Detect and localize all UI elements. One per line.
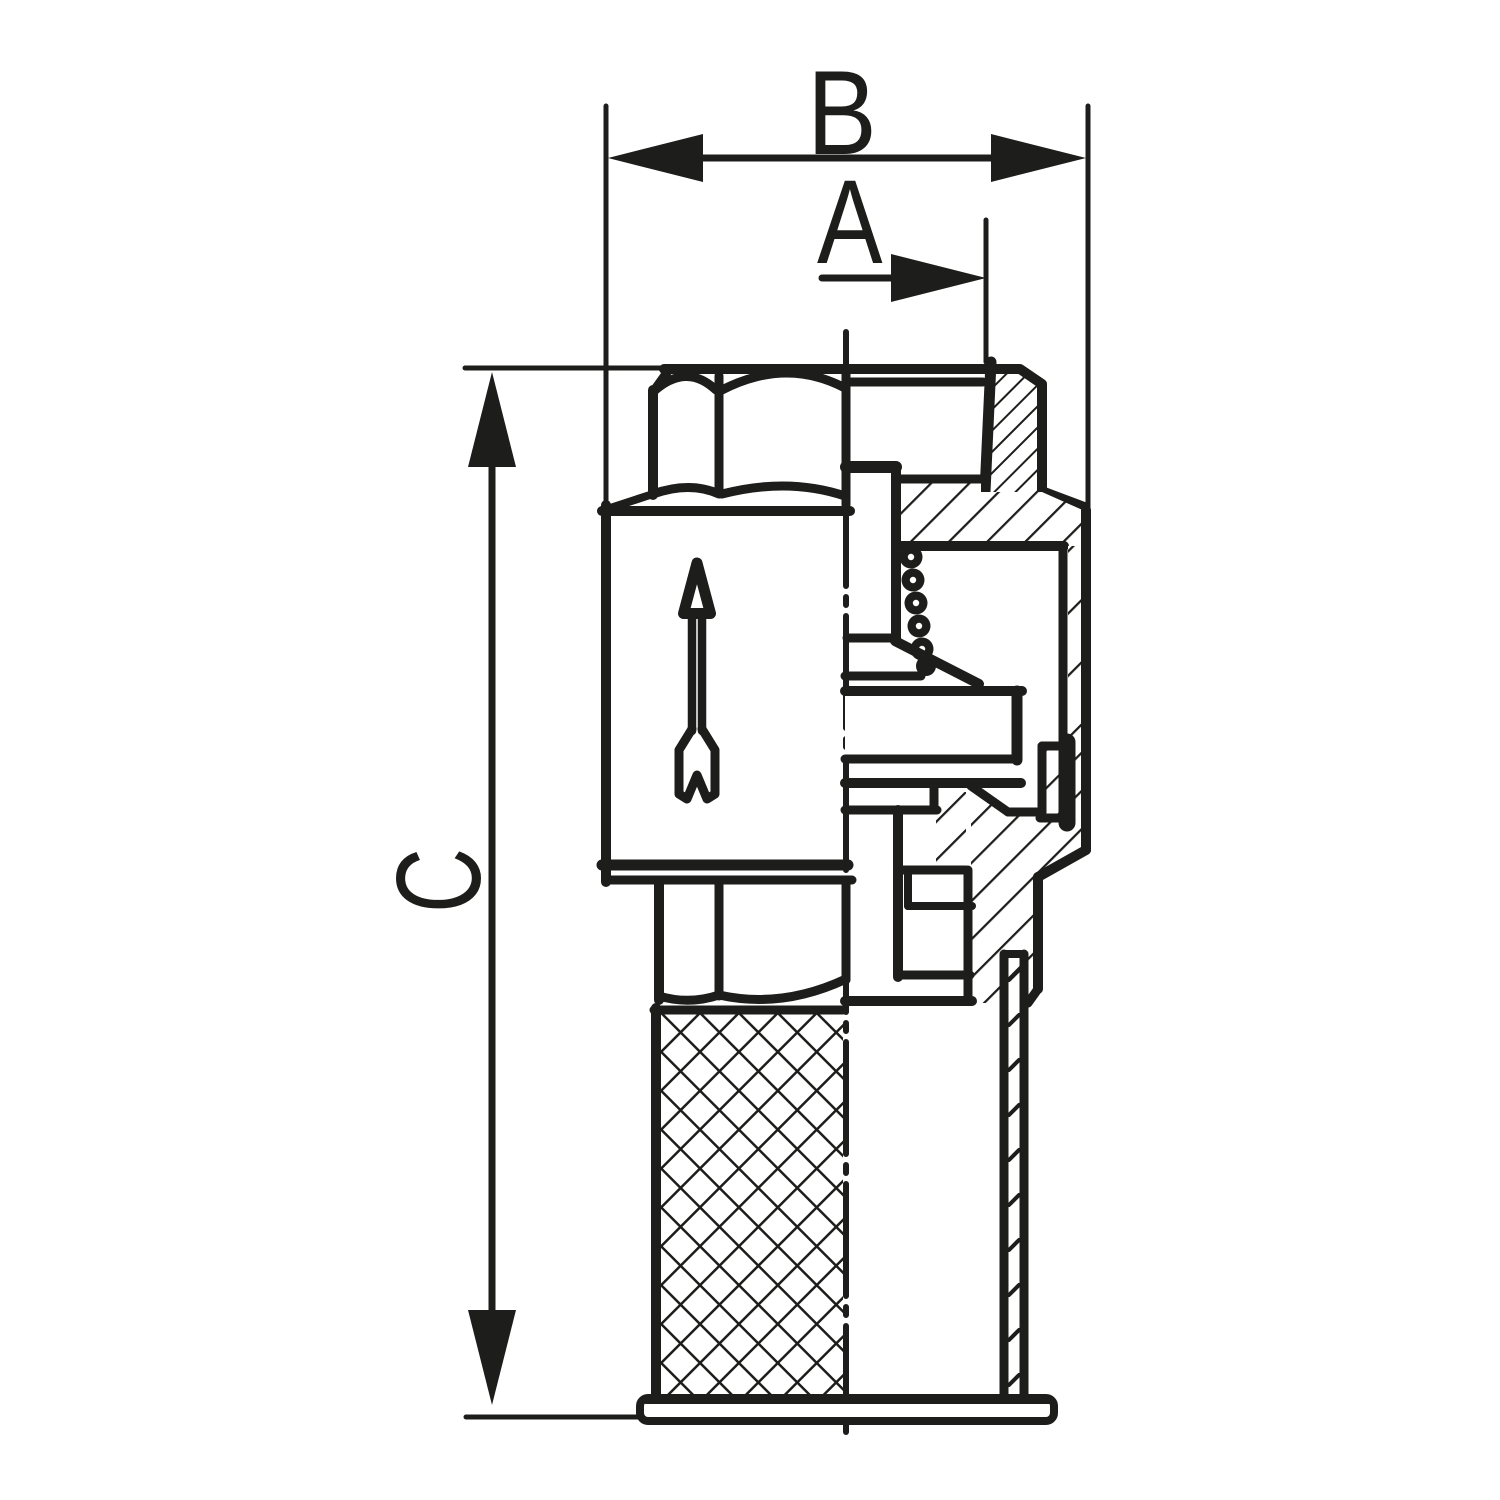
svg-text:C: C: [373, 848, 507, 913]
svg-text:A: A: [817, 156, 883, 289]
